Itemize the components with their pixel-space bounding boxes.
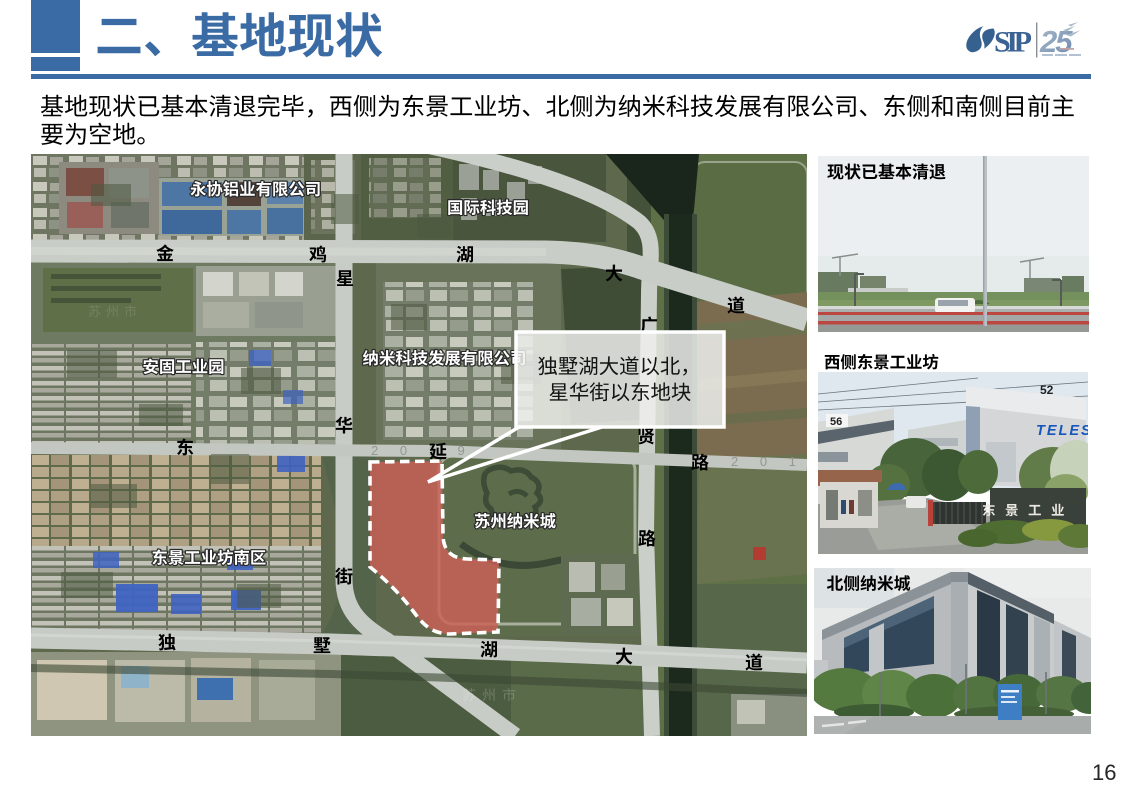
svg-text:56: 56 [830,416,842,428]
svg-text:TELESC: TELESC [1036,423,1088,439]
svg-text:52: 52 [1040,383,1054,397]
svg-text:2 0 1 9: 2 0 1 9 [371,443,474,458]
svg-text:2 0 1: 2 0 1 [731,454,805,469]
svg-text:SIP: SIP [994,25,1032,58]
